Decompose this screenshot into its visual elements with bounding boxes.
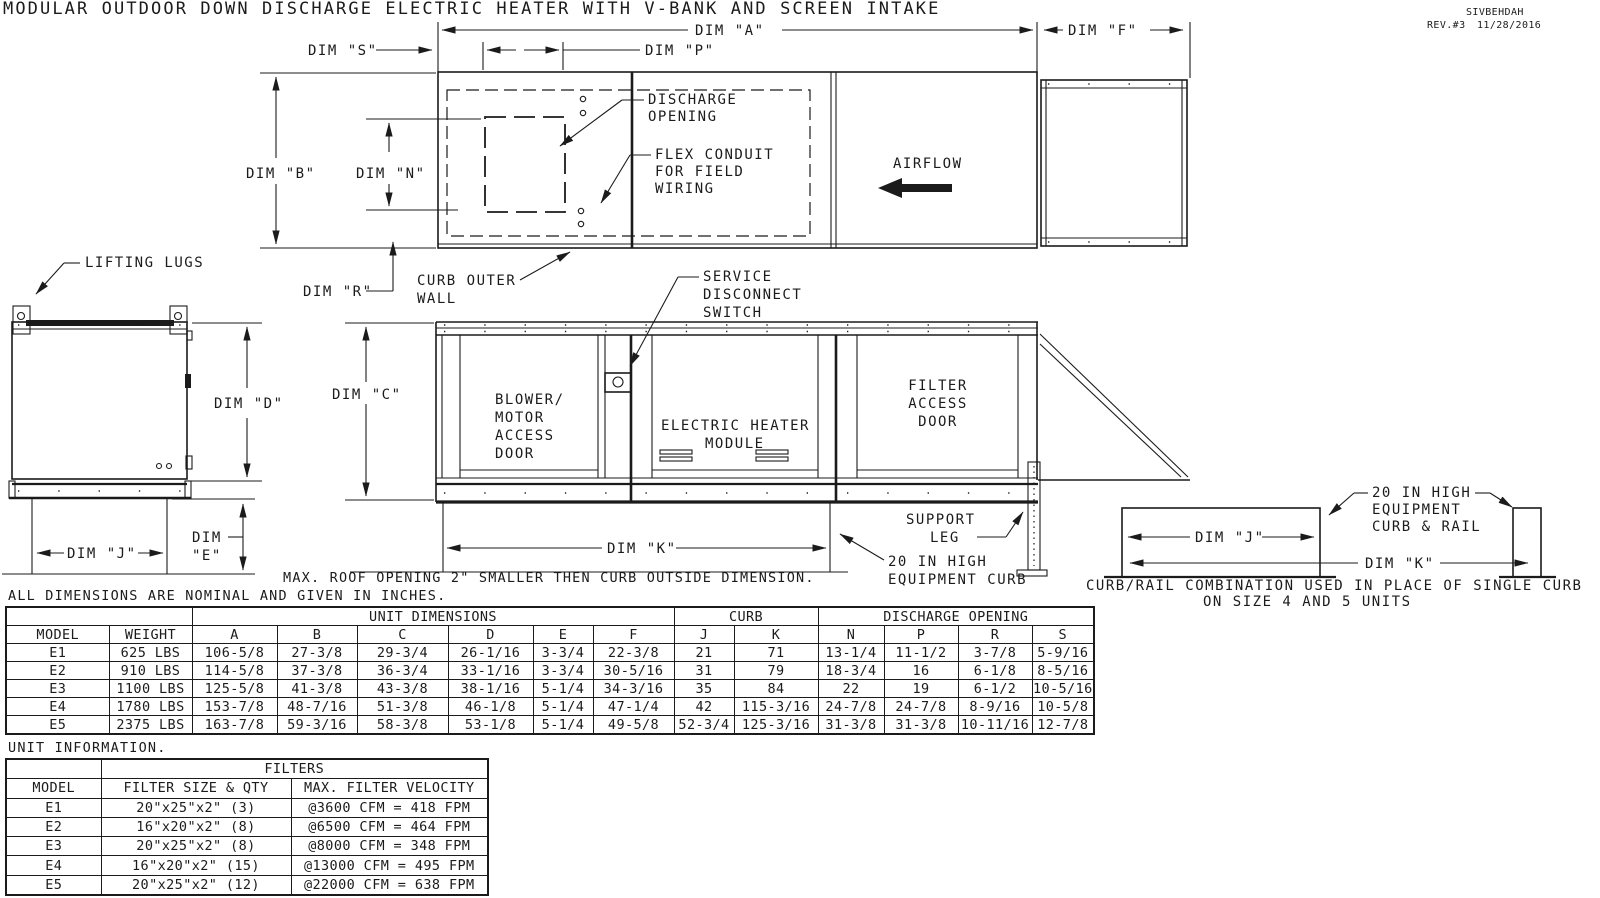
- end-view-dimensions: DIM "D" DIM "J" DIM "E": [37, 323, 284, 574]
- svg-text:ACCESS: ACCESS: [908, 396, 968, 412]
- dim-k-label-curb: DIM "K": [1365, 556, 1435, 572]
- svg-text:WIRING: WIRING: [655, 181, 715, 197]
- group-unit-dimensions: UNIT DIMENSIONS: [192, 607, 674, 626]
- group-curb: CURB: [674, 607, 818, 626]
- end-view-linework: LIFTING LUGS: [2, 255, 204, 574]
- curb-rail-view: DIM "J" DIM "K" 20 IN HIGH EQUIPMENT CUR…: [1086, 485, 1582, 610]
- svg-text:CURB & RAIL: CURB & RAIL: [1372, 519, 1481, 535]
- blower-door-label: BLOWER/: [495, 392, 565, 408]
- dim-k-label: DIM "K": [607, 541, 677, 557]
- svg-text:DOOR: DOOR: [918, 414, 958, 430]
- svg-text:EQUIPMENT CURB: EQUIPMENT CURB: [888, 572, 1027, 588]
- group-header-row: FILTERS: [6, 759, 488, 779]
- svg-text:WALL: WALL: [417, 291, 457, 307]
- heater-module-label: ELECTRIC HEATER: [661, 418, 810, 434]
- table-row: E1 20"x25"x2" (3) @3600 CFM = 418 FPM: [6, 798, 488, 817]
- table-row: E3 20"x25"x2" (8) @8000 CFM = 348 FPM: [6, 837, 488, 856]
- revision-number: REV.#3: [1427, 20, 1466, 31]
- svg-text:ON SIZE 4 AND 5 UNITS: ON SIZE 4 AND 5 UNITS: [1203, 594, 1412, 610]
- dim-f-label: DIM "F": [1068, 23, 1138, 39]
- airflow-label: AIRFLOW: [893, 156, 963, 172]
- dim-p-label: DIM "P": [645, 43, 715, 59]
- dim-j-label-curb: DIM "J": [1195, 530, 1265, 546]
- curb-outer-wall-label: CURB OUTER: [417, 273, 516, 289]
- column-header-row: MODEL FILTER SIZE & QTY MAX. FILTER VELO…: [6, 779, 488, 798]
- support-leg-label: SUPPORT: [906, 512, 976, 528]
- svg-text:OPENING: OPENING: [648, 109, 718, 125]
- dimensions-table: UNIT DIMENSIONS CURB DISCHARGE OPENING M…: [5, 606, 1095, 735]
- flex-conduit-label: FLEX CONDUIT: [655, 147, 774, 163]
- svg-text:DOOR: DOOR: [495, 446, 535, 462]
- airflow-arrow-icon: [878, 178, 952, 198]
- v-bank-screen: [1040, 334, 1188, 477]
- table-row: E41780 LBS 153-7/848-7/16 51-3/846-1/8 5…: [6, 698, 1094, 716]
- table-row: E5 20"x25"x2" (12) @22000 CFM = 638 FPM: [6, 875, 488, 895]
- revision-code: SIVBEHDAH: [1466, 7, 1524, 18]
- dim-b-label: DIM "B": [246, 166, 316, 182]
- unit-information-label: UNIT INFORMATION.: [8, 740, 167, 756]
- side-view-linework: [350, 322, 1190, 576]
- discharge-opening-dashed: [485, 117, 565, 212]
- service-disconnect-switch: [605, 373, 631, 392]
- group-discharge-opening: DISCHARGE OPENING: [818, 607, 1094, 626]
- svg-text:FOR FIELD: FOR FIELD: [655, 164, 744, 180]
- dim-c-label: DIM "C": [332, 387, 402, 403]
- empty-cell: [6, 759, 101, 779]
- dim-a-label: DIM "A": [695, 23, 765, 39]
- dim-n-label: DIM "N": [356, 166, 426, 182]
- equipment-curb-label: 20 IN HIGH: [888, 554, 987, 570]
- curb-rail-caption: CURB/RAIL COMBINATION USED IN PLACE OF S…: [1086, 578, 1582, 594]
- empty-cell: [6, 607, 192, 626]
- dim-s-label: DIM "S": [308, 43, 378, 59]
- table-row: E52375 LBS 163-7/859-3/16 58-3/853-1/8 5…: [6, 716, 1094, 735]
- dim-j-label: DIM "J": [67, 546, 137, 562]
- table-row: E1625 LBS 106-5/827-3/8 29-3/426-1/16 3-…: [6, 644, 1094, 662]
- service-disconnect-label: SERVICE: [703, 269, 773, 285]
- roof-opening-note: MAX. ROOF OPENING 2" SMALLER THEN CURB O…: [283, 570, 815, 586]
- table-row: E4 16"x20"x2" (15) @13000 CFM = 495 FPM: [6, 856, 488, 875]
- svg-text:ACCESS: ACCESS: [495, 428, 555, 444]
- svg-text:SWITCH: SWITCH: [703, 305, 763, 321]
- drawing-sheet: MODULAR OUTDOOR DOWN DISCHARGE ELECTRIC …: [0, 0, 1600, 898]
- column-header-row: MODELWEIGHT AB CD EF JK NP RS: [6, 626, 1094, 644]
- svg-text:MODULE: MODULE: [705, 436, 765, 452]
- table-row: E2 16"x20"x2" (8) @6500 CFM = 464 FPM: [6, 817, 488, 836]
- group-filters: FILTERS: [101, 759, 488, 779]
- dim-d-label: DIM "D": [214, 396, 284, 412]
- dim-e-label: DIM: [192, 530, 222, 546]
- svg-text:DISCONNECT: DISCONNECT: [703, 287, 802, 303]
- lifting-lugs-label: LIFTING LUGS: [85, 255, 204, 271]
- table-row: E2910 LBS 114-5/837-3/8 36-3/433-1/16 3-…: [6, 662, 1094, 680]
- screen-intake-box: [1041, 80, 1187, 246]
- discharge-opening-label: DISCHARGE: [648, 92, 737, 108]
- filter-door-label: FILTER: [908, 378, 968, 394]
- group-header-row: UNIT DIMENSIONS CURB DISCHARGE OPENING: [6, 607, 1094, 626]
- sheet-title: MODULAR OUTDOOR DOWN DISCHARGE ELECTRIC …: [3, 0, 940, 19]
- nominal-dimensions-note: ALL DIMENSIONS ARE NOMINAL AND GIVEN IN …: [8, 588, 446, 604]
- plan-view-linework: [438, 72, 1187, 248]
- svg-text:LEG: LEG: [930, 530, 960, 546]
- curb-rail-label: 20 IN HIGH: [1372, 485, 1471, 501]
- svg-text:MOTOR: MOTOR: [495, 410, 545, 426]
- plan-view-callouts: DISCHARGE OPENING FLEX CONDUIT FOR FIELD…: [417, 92, 963, 366]
- rail: [1513, 508, 1541, 577]
- filters-table: FILTERS MODEL FILTER SIZE & QTY MAX. FIL…: [5, 758, 489, 896]
- revision-date: 11/28/2016: [1477, 20, 1541, 31]
- svg-text:EQUIPMENT: EQUIPMENT: [1372, 502, 1461, 518]
- dim-r-label: DIM "R": [303, 284, 373, 300]
- svg-text:"E": "E": [192, 548, 222, 564]
- curb-outline-dashed: [447, 90, 810, 236]
- table-row: E31100 LBS 125-5/841-3/8 43-3/838-1/16 5…: [6, 680, 1094, 698]
